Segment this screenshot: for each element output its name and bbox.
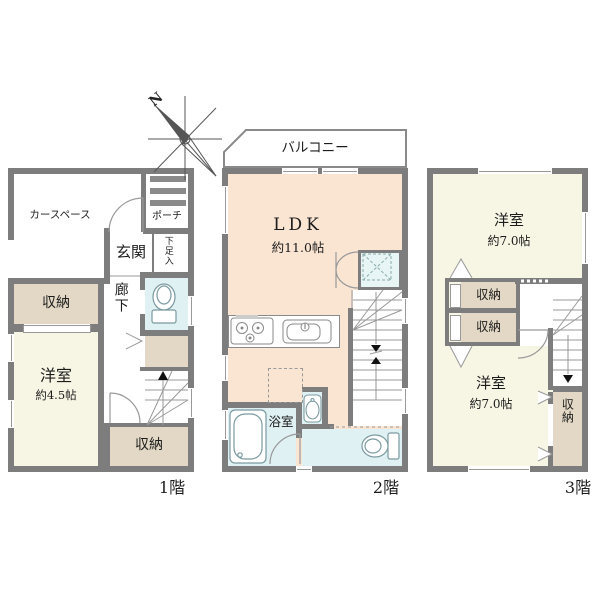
closet-door [450, 315, 461, 341]
ldk-label: LDK [228, 215, 368, 235]
wall [141, 174, 146, 232]
washroom-area [302, 429, 402, 466]
hallway-label: 廊下 [112, 282, 129, 314]
window [282, 168, 318, 174]
entry-step-bar [150, 176, 186, 182]
balcony-label: バルコニー [222, 140, 408, 156]
understair-storage-1f [145, 336, 188, 367]
car-space-label: カースペース [14, 209, 106, 222]
floor1-label: 1階 [146, 478, 198, 497]
staircase-1f [145, 371, 188, 423]
bedroom-3f-top-label: 洋室 [433, 211, 585, 229]
closet-sliding-doors [23, 325, 91, 333]
window [468, 466, 530, 472]
staircase-3f [553, 290, 582, 386]
wall [515, 278, 588, 284]
storage-a-label: 収納 [461, 287, 516, 302]
wall [8, 278, 110, 284]
wall [104, 423, 194, 427]
bedroom-3f-top-size: 約7.0帖 [433, 234, 585, 248]
window [402, 298, 408, 324]
wall [8, 168, 194, 174]
porch-label: ポーチ [146, 211, 188, 223]
window [402, 388, 408, 414]
staircase-2f [353, 290, 402, 426]
storage-side-label: 収納 [560, 398, 574, 424]
wall [8, 466, 194, 472]
toilet-door-gap [140, 290, 145, 314]
compass-icon: N [146, 89, 222, 180]
window [188, 296, 194, 326]
entrance-label: 玄関 [108, 243, 154, 261]
refrigerator-space [268, 368, 303, 403]
bedroom-1f-label: 洋室 [14, 366, 98, 385]
window [8, 334, 14, 362]
window [296, 466, 312, 472]
wall [90, 324, 98, 332]
closet-door [450, 284, 461, 308]
wall [445, 342, 520, 346]
wall [348, 308, 353, 426]
ldk-size: 約11.0帖 [228, 240, 368, 255]
skylight-box [358, 250, 402, 290]
bathroom-label: 浴室 [246, 414, 316, 429]
entry-step-bar [150, 188, 186, 194]
wall [445, 308, 520, 313]
window [322, 168, 358, 174]
wall [140, 367, 194, 371]
shoe-closet-label: 下足入 [162, 236, 173, 266]
wall [143, 228, 194, 234]
window [8, 400, 14, 428]
entry-step-bar [150, 200, 186, 206]
wall [140, 272, 194, 278]
wall [553, 386, 588, 392]
floor-plan-canvas: カースペース ポーチ 玄関 下足入 廊下 収納 洋室 約4.5帖 収納 1階 [0, 0, 600, 600]
window [478, 168, 552, 174]
storage-upper-label: 収納 [14, 295, 98, 312]
car-space-room [14, 174, 104, 278]
storage-lower-label: 収納 [110, 437, 188, 454]
floor2-label: 2階 [360, 478, 412, 497]
bedroom-1f-size: 約4.5帖 [14, 389, 98, 403]
bedroom-3f-bottom-label: 洋室 [433, 374, 549, 392]
compass-north-label: N [146, 89, 166, 110]
toilet-room-1f [145, 278, 188, 330]
floor3-label: 3階 [552, 478, 600, 497]
wall [322, 387, 328, 428]
window [222, 410, 228, 440]
wall [222, 466, 408, 472]
wall [445, 278, 520, 282]
window [188, 388, 194, 418]
kitchen-counter [228, 315, 340, 348]
wall [140, 330, 194, 336]
wall [8, 168, 14, 240]
storage-b-label: 収納 [461, 319, 516, 334]
window [222, 355, 228, 381]
bedroom-3f-bottom-size: 約7.0帖 [433, 397, 549, 411]
